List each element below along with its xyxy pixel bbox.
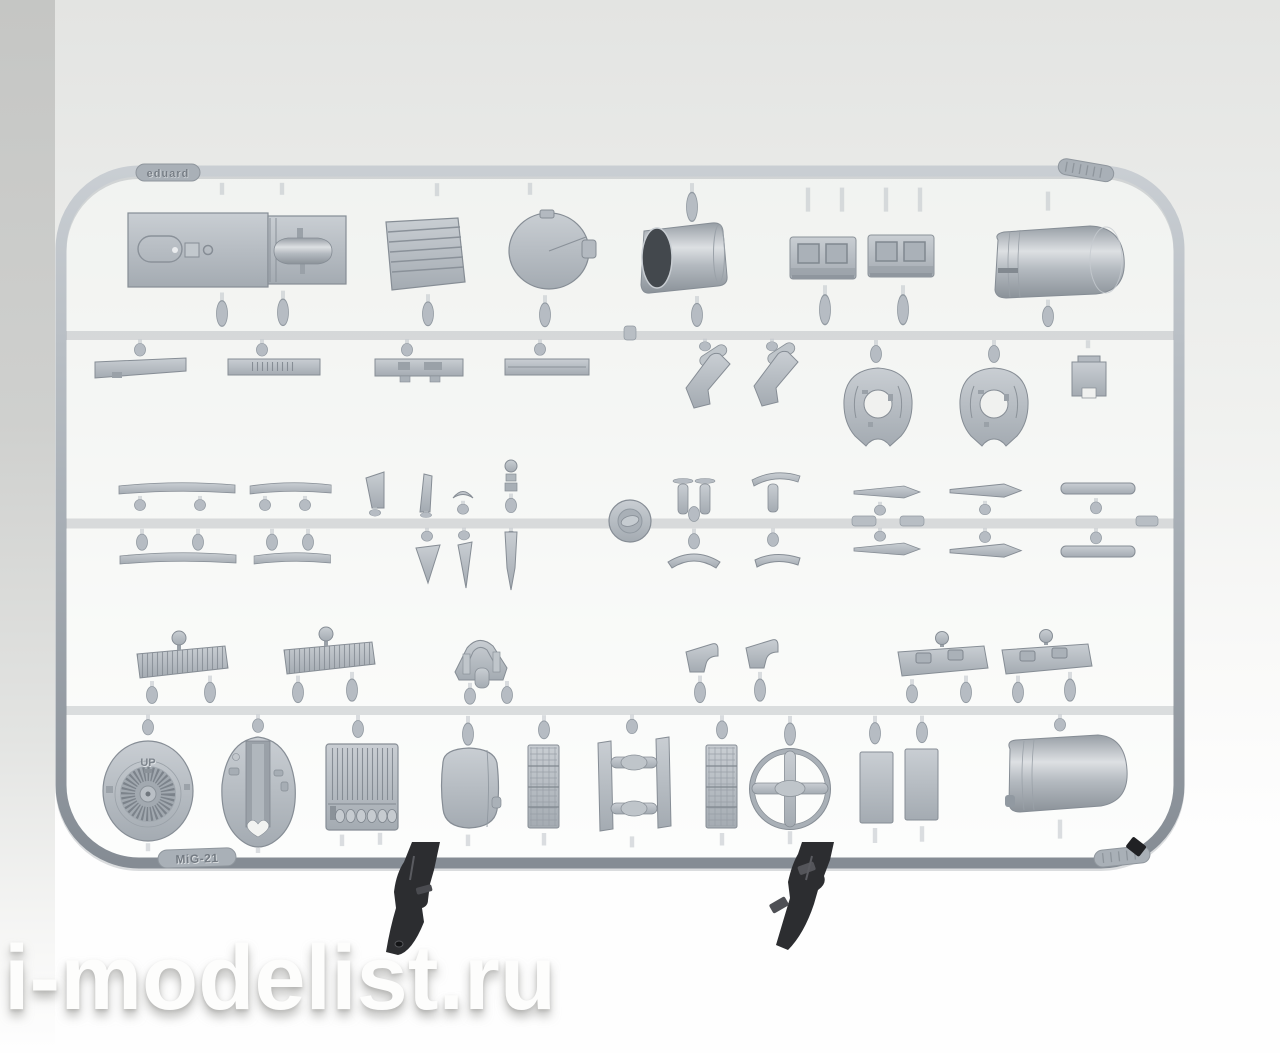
exhaust-nozzle [641,223,727,293]
louvered-panel [386,218,465,290]
spine-fairing-bullet [274,238,332,264]
sprue-illustration: eduard eduard MiG-21 MiG-21 [0,0,1280,1053]
engine-fan-disc: UP UP [103,741,193,841]
rect-panel-1 [860,752,893,823]
oval-access-panel [442,748,502,828]
rail-sleeve [852,516,876,526]
lower-fuselage-shell [1005,735,1127,812]
sprue-product-photo: eduard eduard MiG-21 MiG-21 [0,0,1280,1053]
cross-ring-wheel [750,749,831,830]
thick-strip-upper [1061,483,1135,494]
brand-tag: eduard eduard [136,164,200,181]
flat-strip-4 [505,359,589,375]
center-ring-boss [609,500,651,542]
sprue-name-tag: MiG-21 MiG-21 [158,848,237,869]
svg-text:UP: UP [140,757,155,769]
wheel-hub-plate-2 [960,368,1028,446]
rail-sleeve [624,326,636,340]
rect-panel-2 [905,749,938,820]
flat-strip-2 [228,359,320,375]
louvered-box-panel [326,744,398,830]
square-bracket [1072,356,1106,398]
gearbox-oval-cover [222,737,295,847]
svg-text:MiG-21: MiG-21 [175,851,218,866]
upper-fuselage-shell [995,226,1124,298]
cockpit-sidewall-panel-2 [868,235,934,277]
grid-strip-2 [706,745,737,828]
watermark-text: i-modelist.ru [4,926,556,1031]
grid-strip-1 [528,745,559,828]
wheel-hub-plate-1 [844,368,912,446]
svg-text:eduard: eduard [147,168,190,180]
rail-sleeve [1136,516,1158,526]
cockpit-sidewall-panel-1 [790,237,856,279]
fuselage-deck-panel [128,213,346,287]
thick-strip-lower [1061,546,1135,557]
ball-pin [505,460,517,491]
rail-sleeve [900,516,924,526]
